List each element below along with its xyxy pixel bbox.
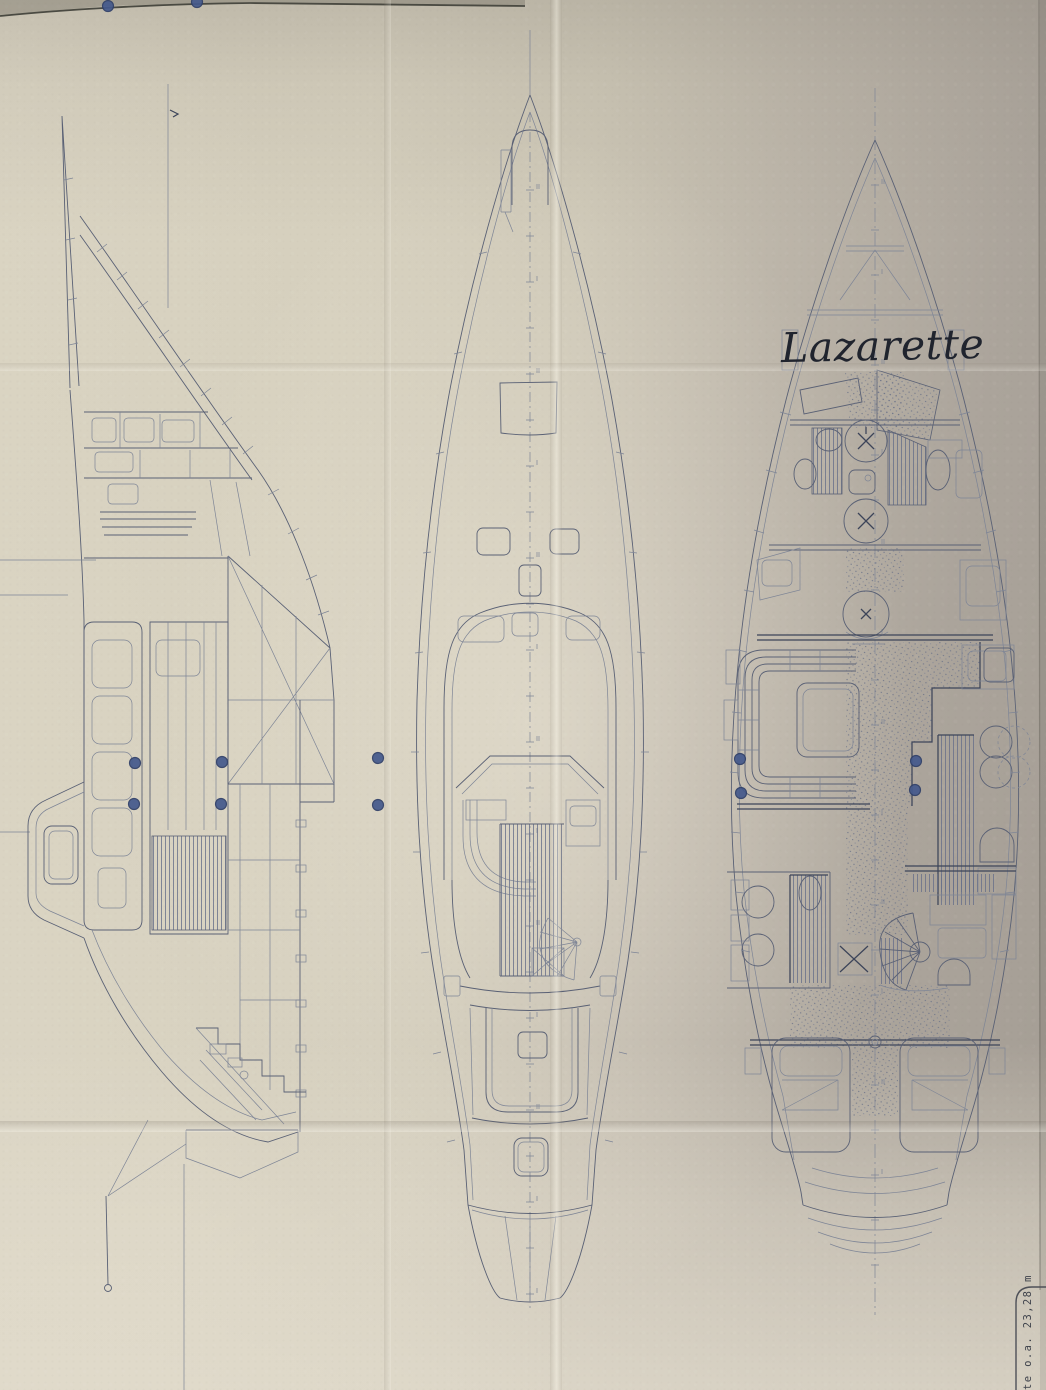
deck-plan-view	[411, 30, 649, 1312]
fastener-dot	[736, 788, 747, 799]
title-block-vertical-text: te o.a. 23,28 m	[1022, 1270, 1038, 1390]
photographed-drawing: Lazarette te o.a. 23,28 m	[0, 0, 1046, 1390]
fastener-dot	[216, 799, 227, 810]
fastener-dots	[103, 0, 922, 811]
drawing-canvas	[0, 0, 1046, 1390]
lazarette-label: Lazarette	[781, 322, 982, 371]
fastener-dot	[373, 800, 384, 811]
fastener-dot	[910, 785, 921, 796]
interior-plan-view	[724, 88, 1030, 1315]
fastener-dot	[192, 0, 203, 8]
fastener-dot	[130, 758, 141, 769]
fastener-dot	[735, 754, 746, 765]
fastener-dot	[103, 1, 114, 12]
fastener-dot	[911, 756, 922, 767]
profile-section-view	[0, 84, 334, 1390]
paper-right-edge	[1039, 0, 1040, 1290]
fastener-dot	[217, 757, 228, 768]
fastener-dot	[373, 753, 384, 764]
fastener-dot	[129, 799, 140, 810]
paper-right-edge-shade	[1040, 0, 1046, 1390]
